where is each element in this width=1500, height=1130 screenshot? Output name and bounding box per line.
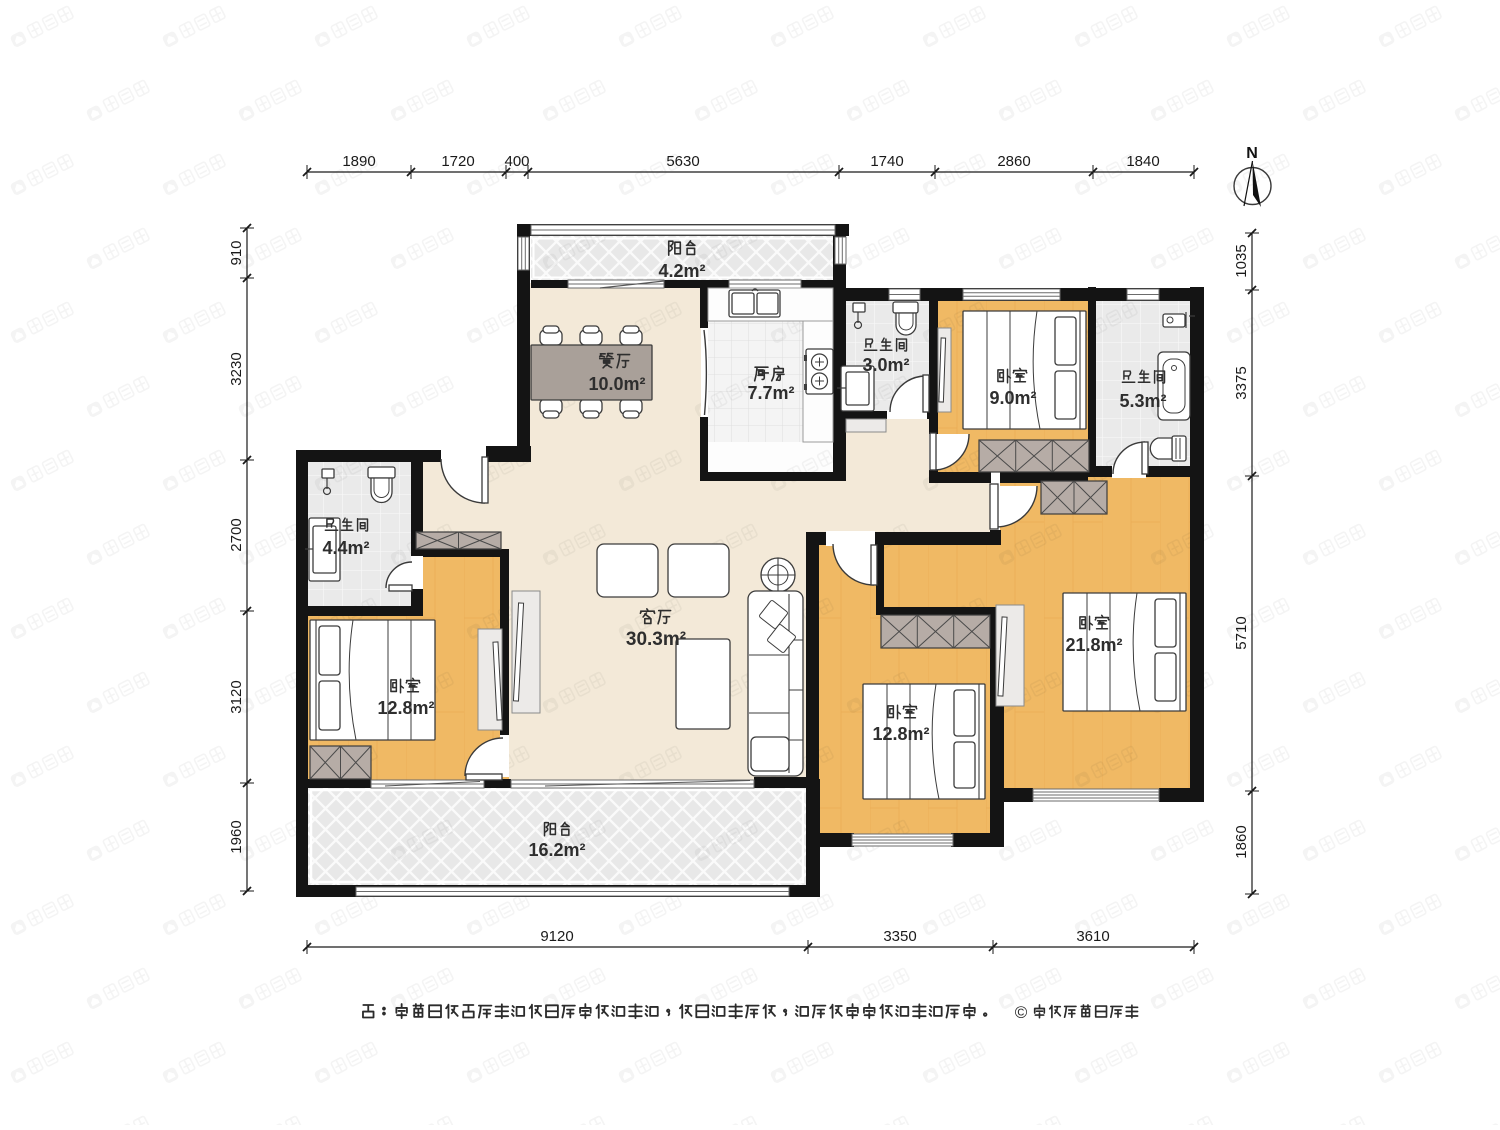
svg-text:30.3m²: 30.3m²	[626, 629, 686, 650]
svg-text:5630: 5630	[666, 153, 699, 170]
svg-text:4.2m²: 4.2m²	[658, 261, 705, 281]
svg-text:10.0m²: 10.0m²	[588, 374, 645, 394]
svg-text:3350: 3350	[883, 928, 916, 945]
svg-text:16.2m²: 16.2m²	[528, 840, 585, 860]
svg-text:N: N	[1246, 145, 1258, 162]
svg-text:9120: 9120	[540, 928, 573, 945]
svg-text:2700: 2700	[228, 518, 245, 551]
svg-text:12.8m²: 12.8m²	[872, 724, 929, 744]
svg-text:3375: 3375	[1233, 366, 1250, 399]
svg-text:3120: 3120	[228, 680, 245, 713]
svg-text:5.3m²: 5.3m²	[1119, 391, 1166, 411]
svg-text:1740: 1740	[870, 153, 903, 170]
svg-text:5710: 5710	[1233, 616, 1250, 649]
svg-text:3.0m²: 3.0m²	[862, 355, 909, 375]
svg-text:1890: 1890	[342, 153, 375, 170]
svg-text:1035: 1035	[1233, 244, 1250, 277]
svg-text:21.8m²: 21.8m²	[1065, 635, 1122, 655]
svg-text:2860: 2860	[997, 153, 1030, 170]
svg-text:9.0m²: 9.0m²	[989, 388, 1036, 408]
svg-text:1840: 1840	[1126, 153, 1159, 170]
svg-text:3610: 3610	[1076, 928, 1109, 945]
svg-text:12.8m²: 12.8m²	[377, 698, 434, 718]
svg-text:4.4m²: 4.4m²	[322, 538, 369, 558]
svg-text:3230: 3230	[228, 352, 245, 385]
svg-text:400: 400	[504, 153, 529, 170]
svg-text:7.7m²: 7.7m²	[747, 383, 794, 403]
svg-text:1860: 1860	[1233, 825, 1250, 858]
svg-text:1720: 1720	[441, 153, 474, 170]
svg-text:1960: 1960	[228, 820, 245, 853]
svg-text:910: 910	[228, 240, 245, 265]
svg-text:©: ©	[1015, 1003, 1028, 1022]
